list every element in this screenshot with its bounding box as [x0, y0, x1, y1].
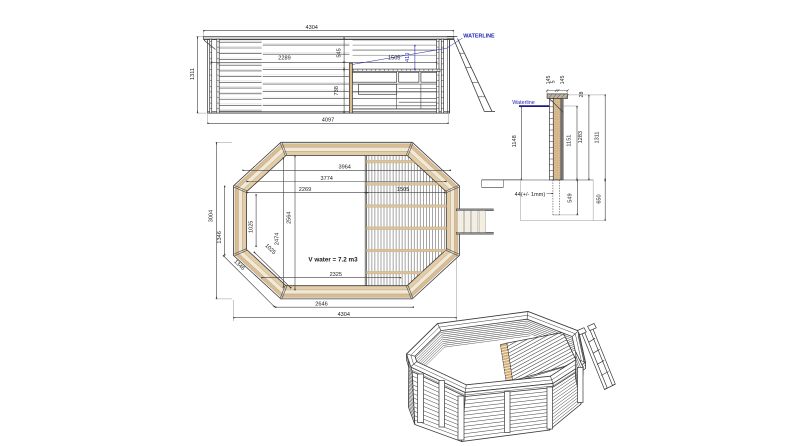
svg-text:4097: 4097 — [322, 118, 334, 124]
svg-text:2289: 2289 — [278, 56, 290, 62]
svg-text:650: 650 — [597, 194, 603, 203]
svg-text:1311: 1311 — [190, 68, 196, 80]
svg-text:Waterline: Waterline — [512, 100, 535, 106]
svg-text:WATERLINE: WATERLINE — [463, 33, 495, 39]
svg-text:28: 28 — [579, 92, 585, 98]
svg-text:5: 5 — [551, 80, 557, 83]
svg-text:4304: 4304 — [305, 25, 317, 31]
svg-text:V water = 7.2 m3: V water = 7.2 m3 — [308, 257, 358, 264]
svg-text:738: 738 — [334, 86, 340, 95]
svg-text:145: 145 — [560, 76, 566, 85]
svg-text:3964: 3964 — [338, 165, 350, 171]
svg-text:44(+/- 1mm): 44(+/- 1mm) — [515, 192, 546, 198]
svg-text:1283: 1283 — [578, 131, 584, 143]
svg-text:2474: 2474 — [274, 233, 280, 245]
svg-text:3774: 3774 — [320, 176, 332, 182]
svg-text:1505: 1505 — [397, 187, 409, 193]
svg-text:2325: 2325 — [330, 272, 342, 278]
svg-text:545: 545 — [337, 48, 343, 57]
svg-text:1346: 1346 — [217, 231, 223, 243]
svg-text:549: 549 — [567, 193, 573, 202]
svg-text:1025: 1025 — [249, 221, 255, 233]
svg-text:4304: 4304 — [338, 312, 350, 318]
svg-text:1148: 1148 — [512, 135, 518, 147]
svg-text:410: 410 — [405, 53, 411, 62]
svg-text:1311: 1311 — [594, 131, 600, 143]
svg-text:2564: 2564 — [287, 211, 293, 223]
svg-text:2269: 2269 — [299, 187, 311, 193]
svg-text:2646: 2646 — [315, 302, 327, 308]
svg-text:1151: 1151 — [566, 135, 572, 147]
svg-text:3004: 3004 — [209, 210, 215, 222]
